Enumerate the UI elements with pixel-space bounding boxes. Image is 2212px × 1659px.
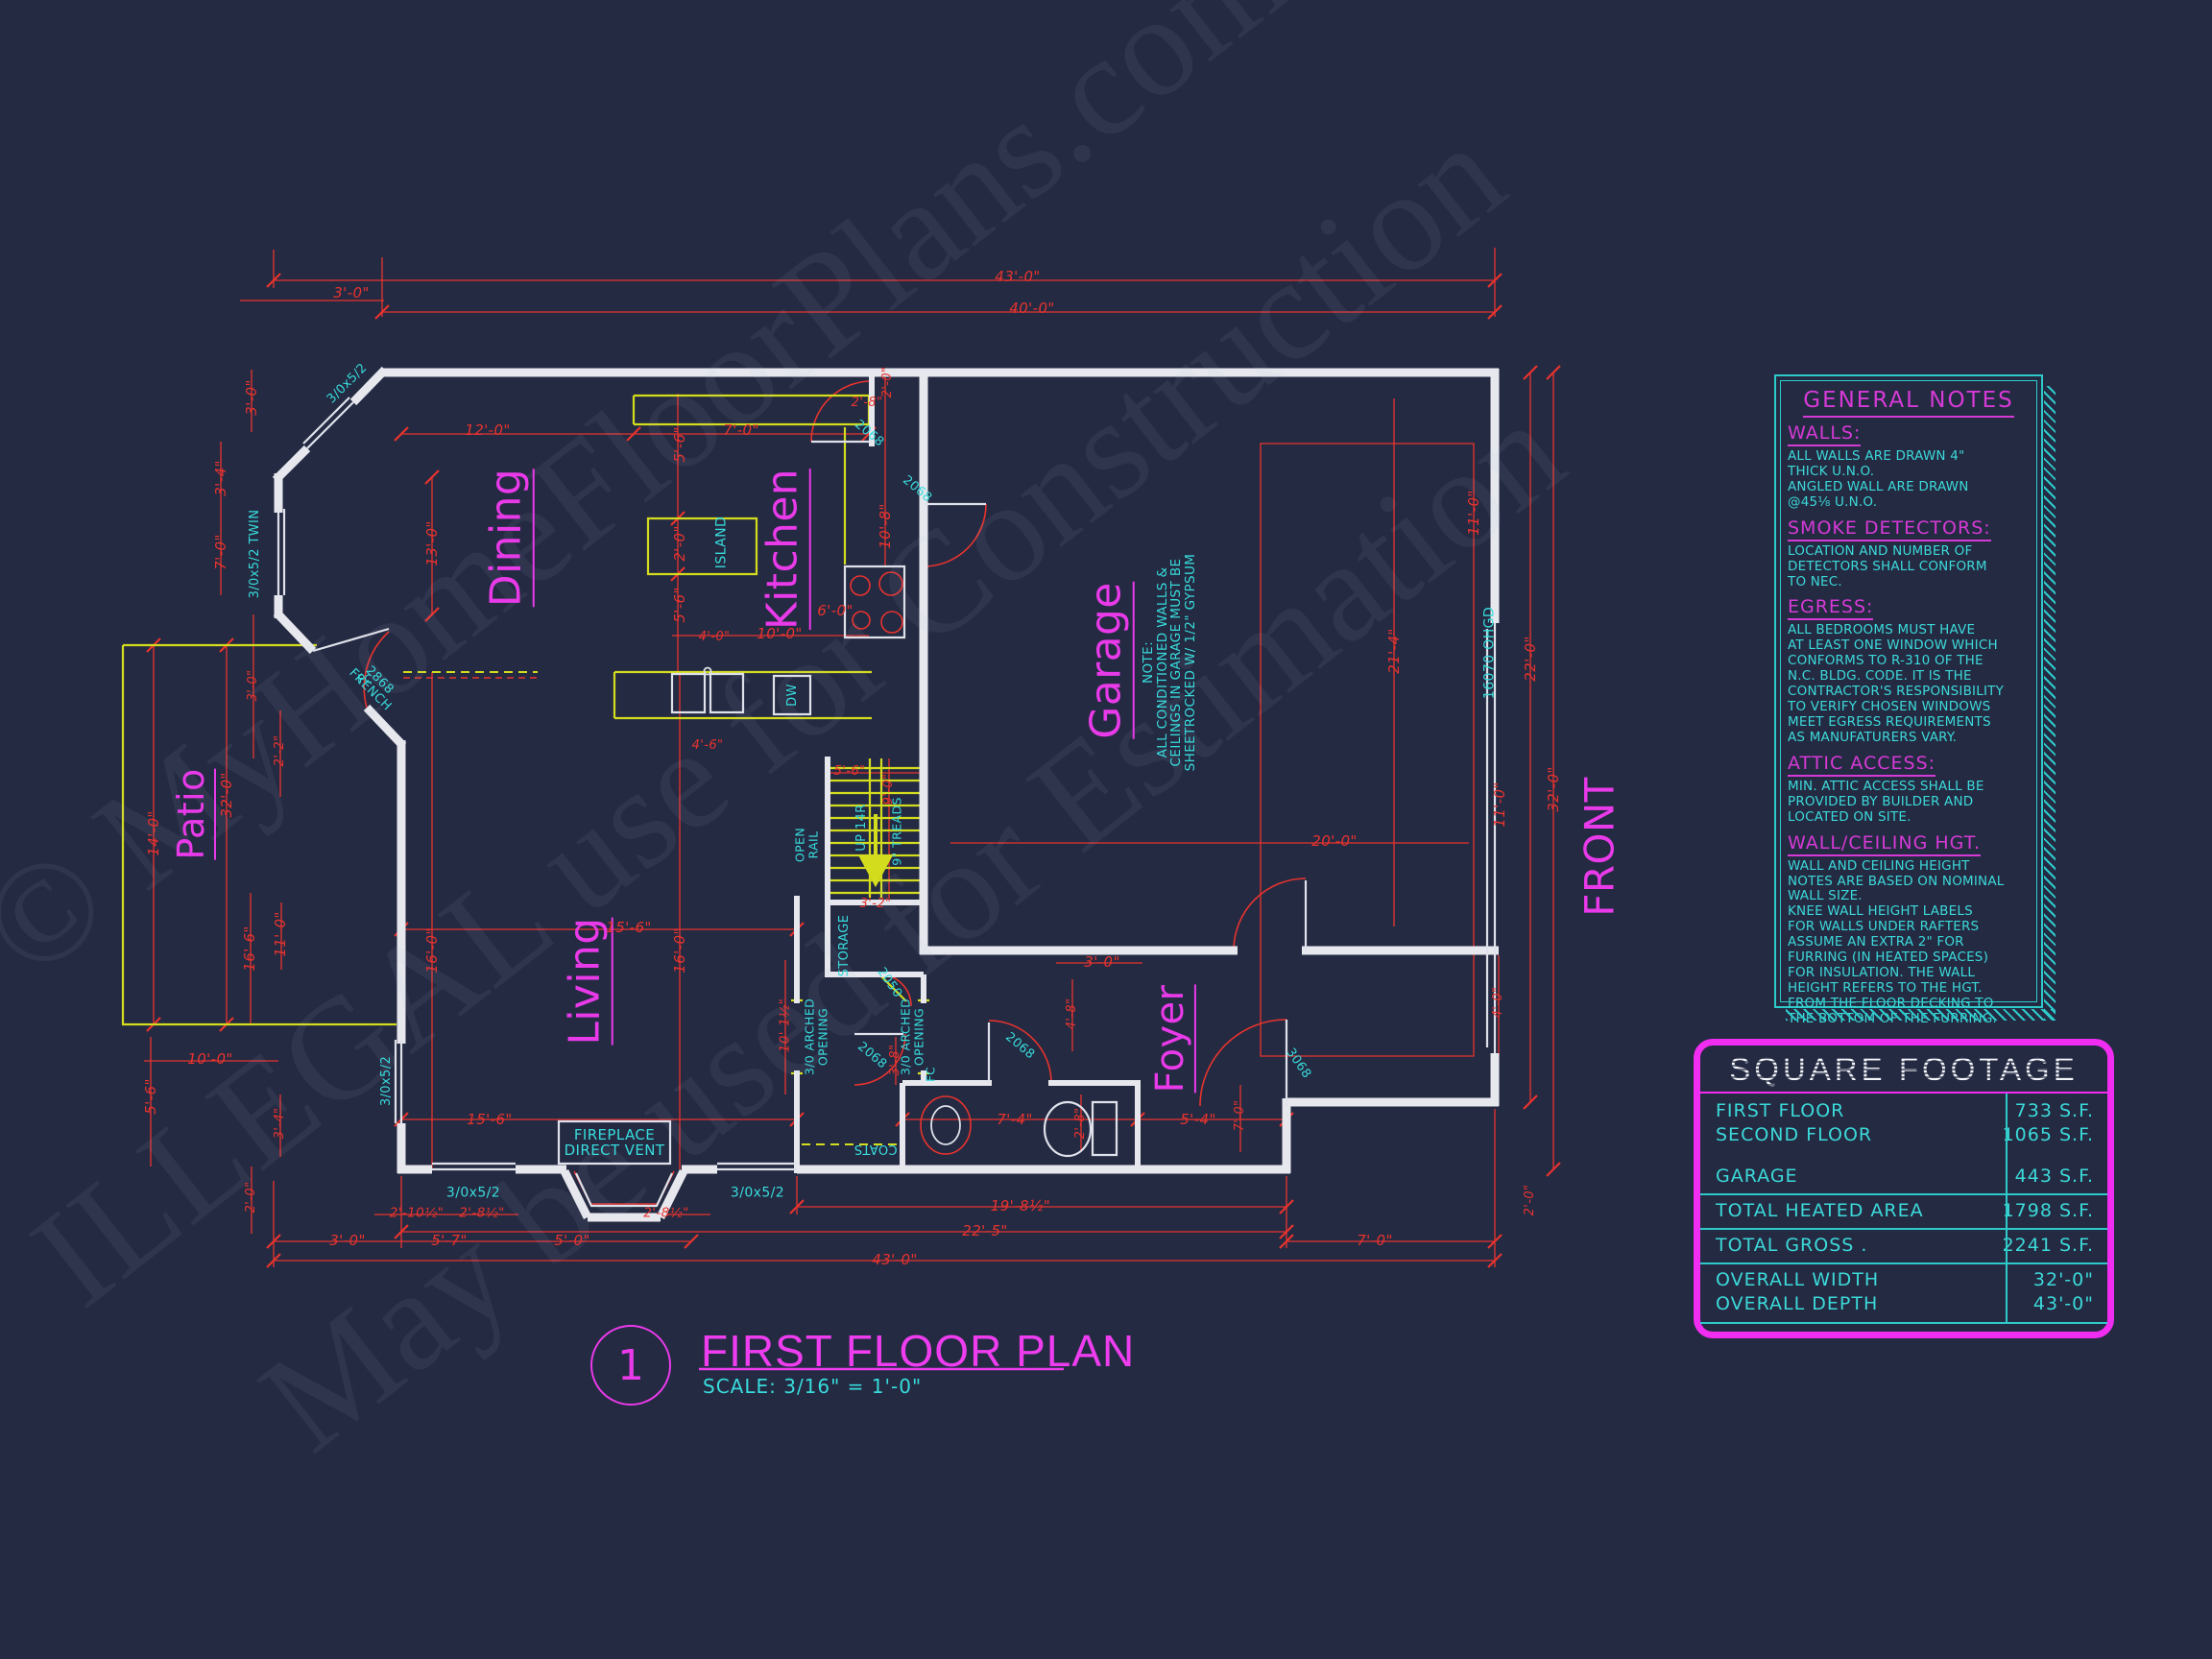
room-label-patio: Patio bbox=[172, 768, 216, 859]
notes-section-body: LOCATION AND NUMBER OF DETECTORS SHALL C… bbox=[1788, 544, 2030, 590]
plan-number-bubble: 1 bbox=[590, 1325, 671, 1406]
sqft-row: TOTAL GROSS .2241 S.F. bbox=[1700, 1228, 2107, 1258]
plan-number: 1 bbox=[617, 1341, 644, 1390]
door-label: 2068 bbox=[854, 1040, 889, 1071]
dim: 3'-4" bbox=[213, 460, 228, 496]
dim: 7'-0" bbox=[213, 534, 228, 570]
door-label: 2068 bbox=[900, 473, 934, 505]
sqft-row-value: 1798 S.F. bbox=[2003, 1200, 2094, 1222]
dim: 21'-4" bbox=[1386, 628, 1402, 673]
sqft-vertical-divider bbox=[2006, 1094, 2008, 1324]
dim: 16'-6" bbox=[242, 926, 257, 971]
dim: 10'-0" bbox=[187, 1051, 232, 1067]
room-label-kitchen: Kitchen bbox=[760, 469, 811, 630]
dim: 2'-0" bbox=[1524, 1185, 1537, 1216]
notes-title: GENERAL NOTES bbox=[1788, 388, 2030, 413]
sqft-row: GARAGE443 S.F. bbox=[1700, 1165, 2107, 1189]
open-rail-label: OPEN RAIL bbox=[794, 828, 820, 862]
dim: 20'-0" bbox=[1311, 833, 1357, 849]
dim: 3'-2" bbox=[860, 898, 892, 911]
dim: 4'-6" bbox=[692, 739, 724, 753]
dim: 22'-5" bbox=[962, 1223, 1007, 1238]
notes-section-heading: WALL/CEILING HGT. bbox=[1788, 832, 1981, 856]
dim: 11'-0" bbox=[1492, 781, 1507, 827]
dim: 22'-0" bbox=[1523, 636, 1538, 681]
dim: 4'-0" bbox=[699, 631, 731, 644]
arched-opening-label: 3/0 ARCHED OPENING bbox=[804, 998, 829, 1075]
dim: 2'-2" bbox=[274, 735, 287, 767]
dim: 16'-0" bbox=[672, 927, 687, 973]
sqft-row-value: 43'-0" bbox=[2033, 1293, 2094, 1315]
dim: 2'-10½" bbox=[390, 1207, 444, 1221]
dim: 2'-8½" bbox=[643, 1207, 688, 1221]
garage-note: NOTE: ALL CONDITIONED WALLS & CEILINGS I… bbox=[1142, 554, 1197, 772]
notes-hatch-edge bbox=[1786, 1009, 2056, 1021]
sqft-row: FIRST FLOOR733 S.F. bbox=[1700, 1099, 2107, 1123]
dim: 2'-8" bbox=[852, 397, 883, 410]
window-label: 3/0x5/2 bbox=[731, 1186, 784, 1200]
sqft-row: SECOND FLOOR1065 S.F. bbox=[1700, 1123, 2107, 1147]
notes-section-body: ALL BEDROOMS MUST HAVE AT LEAST ONE WIND… bbox=[1788, 623, 2030, 745]
door-label: 2068 bbox=[852, 418, 886, 449]
island-label: ISLAND bbox=[714, 517, 729, 568]
dim: 9'-0" bbox=[882, 774, 896, 805]
arched-opening-label: 3/0 ARCHED OPENING bbox=[900, 998, 926, 1075]
sqft-row-value: 2241 S.F. bbox=[2003, 1235, 2094, 1257]
notes-section-body: WALL AND CEILING HEIGHT NOTES ARE BASED … bbox=[1788, 859, 2030, 1027]
dim: 10'-0" bbox=[757, 626, 802, 641]
sqft-row-label: FIRST FLOOR bbox=[1716, 1100, 1844, 1122]
sqft-row: OVERALL WIDTH32'-0" bbox=[1700, 1262, 2107, 1292]
sqft-bottom-rule bbox=[1700, 1322, 2107, 1324]
notes-section-body: MIN. ATTIC ACCESS SHALL BE PROVIDED BY B… bbox=[1788, 780, 2030, 826]
dim: 15'-6" bbox=[467, 1112, 512, 1127]
stairs-treads-label: 9" TREADS bbox=[890, 797, 903, 866]
front-label: FRONT bbox=[1577, 777, 1621, 916]
notes-section-heading: SMOKE DETECTORS: bbox=[1788, 517, 1991, 541]
room-label-garage: Garage bbox=[1084, 582, 1135, 739]
dim: 6'-0" bbox=[817, 603, 854, 618]
dim: 5'-0" bbox=[554, 1233, 590, 1248]
window-label: 3/0x5/2 bbox=[446, 1186, 500, 1200]
sqft-row-label: TOTAL HEATED AREA bbox=[1716, 1200, 1924, 1222]
notes-hatch-edge bbox=[2044, 386, 2056, 1021]
dim: 5'-6" bbox=[834, 765, 866, 779]
dim: 7'-0" bbox=[1357, 1233, 1393, 1248]
cad-floor-plan-sheet: © MyHomeFloorPlans.comILLEGAL use for Co… bbox=[0, 0, 2212, 1659]
notes-section-body: ALL WALLS ARE DRAWN 4" THICK U.N.O. ANGL… bbox=[1788, 449, 2030, 511]
sqft-body: FIRST FLOOR733 S.F.SECOND FLOOR1065 S.F.… bbox=[1700, 1094, 2107, 1324]
storage-label: STORAGE bbox=[838, 915, 852, 977]
sqft-row-value: 443 S.F. bbox=[2015, 1166, 2094, 1188]
dim: 5'-6" bbox=[672, 587, 687, 623]
sqft-row-label: TOTAL GROSS . bbox=[1716, 1235, 1867, 1257]
window-label: 3/0x5/2 TWIN bbox=[249, 510, 262, 599]
dishwasher-label: DW bbox=[786, 684, 800, 707]
notes-section-heading: WALLS: bbox=[1788, 422, 1861, 446]
room-label-living: Living bbox=[563, 917, 613, 1045]
sqft-row bbox=[1700, 1147, 2107, 1165]
dim: 7'-4" bbox=[997, 1112, 1033, 1127]
dim: 16'-0" bbox=[424, 927, 440, 973]
page-title: FIRST FLOOR PLAN bbox=[701, 1325, 1135, 1377]
dim: 3'-0" bbox=[333, 285, 370, 301]
notes-section-heading: EGRESS: bbox=[1788, 596, 1873, 620]
sqft-row-value: 32'-0" bbox=[2033, 1269, 2094, 1291]
notes-sections: WALLS:ALL WALLS ARE DRAWN 4" THICK U.N.O… bbox=[1788, 422, 2030, 1027]
plan-scale: SCALE: 3/16" = 1'-0" bbox=[703, 1375, 922, 1398]
door-label: 2068 bbox=[1002, 1030, 1037, 1062]
sqft-title: SQUARE FOOTAGE bbox=[1700, 1051, 2107, 1088]
dim: 19'-8½" bbox=[991, 1198, 1050, 1214]
dim: 5'-4" bbox=[1180, 1112, 1216, 1127]
door-label: 2050 bbox=[874, 966, 903, 1000]
sqft-row-label: SECOND FLOOR bbox=[1716, 1124, 1872, 1146]
door-label: 3068 bbox=[1283, 1046, 1312, 1081]
sqft-rows: FIRST FLOOR733 S.F.SECOND FLOOR1065 S.F.… bbox=[1700, 1099, 2107, 1316]
dim: 2'-8½" bbox=[459, 1207, 504, 1221]
garage-door-label: 16070 OHGD bbox=[1482, 607, 1497, 699]
dim: 4'-0" bbox=[1492, 987, 1505, 1019]
sqft-row-label: OVERALL WIDTH bbox=[1716, 1269, 1879, 1291]
window-label: 3/0x5/2 bbox=[380, 1056, 394, 1106]
french-door-label: 2868 FRENCH bbox=[346, 657, 402, 713]
dim: 11'-0" bbox=[1466, 490, 1481, 535]
sqft-row: OVERALL DEPTH43'-0" bbox=[1700, 1292, 2107, 1316]
window-label: 3/0x5/2 bbox=[325, 362, 371, 407]
dim: 12'-0" bbox=[465, 422, 510, 438]
dim: 14'-0" bbox=[146, 810, 161, 855]
dim: 2'-0" bbox=[881, 367, 895, 398]
sqft-row: TOTAL HEATED AREA1798 S.F. bbox=[1700, 1193, 2107, 1223]
dim: 32'-0" bbox=[219, 772, 234, 817]
general-notes-panel: GENERAL NOTES WALLS:ALL WALLS ARE DRAWN … bbox=[1774, 374, 2043, 1008]
dim: 15'-6" bbox=[606, 920, 651, 935]
dim: 3'-0" bbox=[329, 1233, 366, 1248]
dim: 3'-0" bbox=[1084, 954, 1120, 970]
dim: 40'-0" bbox=[1009, 301, 1054, 316]
coats-label: COATS bbox=[854, 1142, 897, 1155]
dim: 4'-8" bbox=[1066, 998, 1079, 1030]
dim: 13'-0" bbox=[424, 520, 440, 565]
dim: 32'-0" bbox=[1546, 766, 1561, 811]
fireplace-label: FIREPLACE DIRECT VENT bbox=[565, 1127, 665, 1158]
fc-label: FC bbox=[926, 1067, 938, 1082]
dim: 7'-0" bbox=[723, 422, 759, 438]
dim: 5'-6" bbox=[143, 1078, 158, 1115]
dim: 2'-8" bbox=[1074, 1108, 1088, 1140]
square-footage-panel: SQUARE FOOTAGE FIRST FLOOR733 S.F.SECOND… bbox=[1694, 1039, 2114, 1338]
dim: 11'-0" bbox=[273, 911, 288, 956]
room-label-dining: Dining bbox=[484, 469, 535, 607]
dim: 5'-6" bbox=[672, 426, 687, 463]
sqft-row-label: GARAGE bbox=[1716, 1166, 1798, 1188]
dim: 7'-0" bbox=[1234, 1100, 1247, 1132]
dim: 3'-0" bbox=[244, 379, 259, 416]
dim: 3'-0" bbox=[247, 670, 260, 702]
dim: 3'-8" bbox=[889, 1045, 902, 1076]
room-label-foyer: Foyer bbox=[1150, 985, 1196, 1094]
dim: 10'-8" bbox=[878, 503, 893, 548]
notes-section-heading: ATTIC ACCESS: bbox=[1788, 753, 1935, 777]
sqft-row-value: 733 S.F. bbox=[2015, 1100, 2094, 1122]
dim: 10'-1½" bbox=[779, 998, 793, 1052]
dim: 5'-7" bbox=[431, 1233, 468, 1248]
sqft-row-value: 1065 S.F. bbox=[2003, 1124, 2094, 1146]
dim: 2'-0" bbox=[245, 1182, 258, 1214]
dim: 43'-0" bbox=[872, 1252, 917, 1267]
dim: 43'-0" bbox=[995, 269, 1040, 284]
dim: 3'-4" bbox=[274, 1108, 287, 1140]
sqft-row-label: OVERALL DEPTH bbox=[1716, 1293, 1878, 1315]
stairs-up-label: UP 14R bbox=[855, 804, 869, 851]
dim: 2'-0" bbox=[672, 525, 687, 562]
